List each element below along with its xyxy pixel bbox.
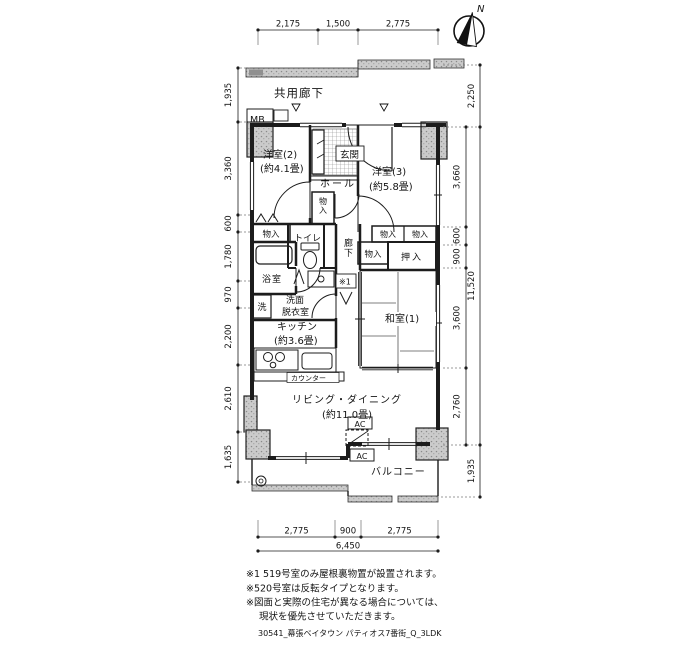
dim-left-7: 2,610 [224, 386, 234, 410]
dim-left-1: 1,935 [224, 83, 234, 107]
balcony-rail [252, 485, 348, 491]
dim-right-inner-1: 3,660 [453, 165, 463, 189]
washer-label: 洗 [258, 301, 267, 313]
closet-label: 物入 [364, 249, 382, 260]
dim-right-inner-4: 3,600 [453, 306, 463, 330]
dim-left-4: 1,780 [224, 244, 234, 268]
shoe-cabinet [312, 130, 324, 174]
washroom-label-2: 脱衣室 [282, 306, 309, 318]
note-line-4: 現状を優先させていただきます。 [259, 611, 401, 623]
entrance-label: 玄関 [340, 149, 359, 161]
dim-left-2: 3,360 [224, 156, 234, 180]
dim-left-3: 600 [224, 215, 234, 231]
pillar [421, 122, 447, 159]
dim-bottom-1: 2,775 [284, 527, 308, 537]
western2-size: (約4.1畳) [260, 162, 304, 175]
dim-top-2: 1,500 [326, 20, 350, 30]
kitchen-name: キッチン [277, 321, 317, 333]
dim-right-inner-5: 2,760 [453, 394, 463, 418]
dim-right-inner-3: 900 [453, 248, 463, 264]
hall-label: ホール [320, 178, 356, 190]
dim-left-5: 970 [224, 286, 234, 302]
note-line-2: ※520号室は反転タイプとなります。 [246, 583, 404, 595]
western3-name: 洋室(3) [372, 165, 406, 178]
floor-plan: 共用廊下 MB 玄関 [0, 0, 700, 650]
footer-text: 30541_幕張ベイタウン パティオス7番街_Q_3LDK [258, 628, 442, 638]
compass-north-label: N [477, 4, 485, 15]
dim-right-outer-2: 11,520 [467, 271, 477, 301]
closet-label: 物入 [380, 229, 396, 239]
living-dining-size: (約11.0畳) [322, 408, 372, 421]
attic-marker-label: ※1 [339, 278, 351, 287]
japanese-room-label: 和室(1) [385, 312, 419, 325]
mb-small-box [274, 110, 288, 121]
dim-left-8: 1,635 [224, 445, 234, 469]
dim-bottom-total: 6,450 [336, 542, 360, 552]
living-dining-name: リビング・ダイニング [292, 393, 402, 406]
kitchen-size: (約3.6畳) [274, 334, 318, 347]
dim-top-1: 2,175 [276, 20, 300, 30]
toilet-label: トイレ [294, 234, 321, 244]
page-background [0, 0, 700, 650]
common-corridor-label: 共用廊下 [274, 86, 324, 100]
balcony-label: バルコニー [371, 466, 426, 478]
bath-label: 浴室 [262, 273, 282, 285]
balcony-rail [398, 496, 438, 502]
ac-label: AC [357, 452, 368, 461]
dim-right-inner-2: 600 [453, 228, 463, 244]
pillar [244, 396, 257, 432]
dim-right-outer-1: 2,250 [467, 84, 477, 108]
western3-size: (約5.8畳) [369, 180, 413, 193]
dim-top-3: 2,775 [386, 20, 410, 30]
dim-bottom-2: 900 [340, 527, 356, 537]
closet-label: 物入 [412, 229, 428, 239]
washroom-label-1: 洗面 [286, 294, 304, 306]
western2-name: 洋室(2) [263, 148, 297, 161]
note-line-3: ※図面と実際の住宅が異なる場合については、 [246, 597, 444, 609]
corridor-label: 廊下 [342, 237, 353, 258]
dim-left-6: 2,200 [224, 324, 234, 348]
hall-closet-label: 物入 [319, 196, 328, 215]
oshiire-label: 押入 [401, 251, 423, 263]
dim-right-outer-3: 1,935 [467, 459, 477, 483]
pillar [246, 430, 270, 459]
closet-label: 物入 [262, 229, 280, 240]
ac-label: AC [355, 420, 366, 429]
note-line-1: ※1 519号室のみ屋根裏物置が設置されます。 [246, 568, 442, 580]
counter-label: カウンター [291, 374, 326, 383]
dim-bottom-3: 2,775 [387, 527, 411, 537]
balcony-rail [348, 496, 392, 502]
corridor-detail-block [249, 70, 263, 76]
